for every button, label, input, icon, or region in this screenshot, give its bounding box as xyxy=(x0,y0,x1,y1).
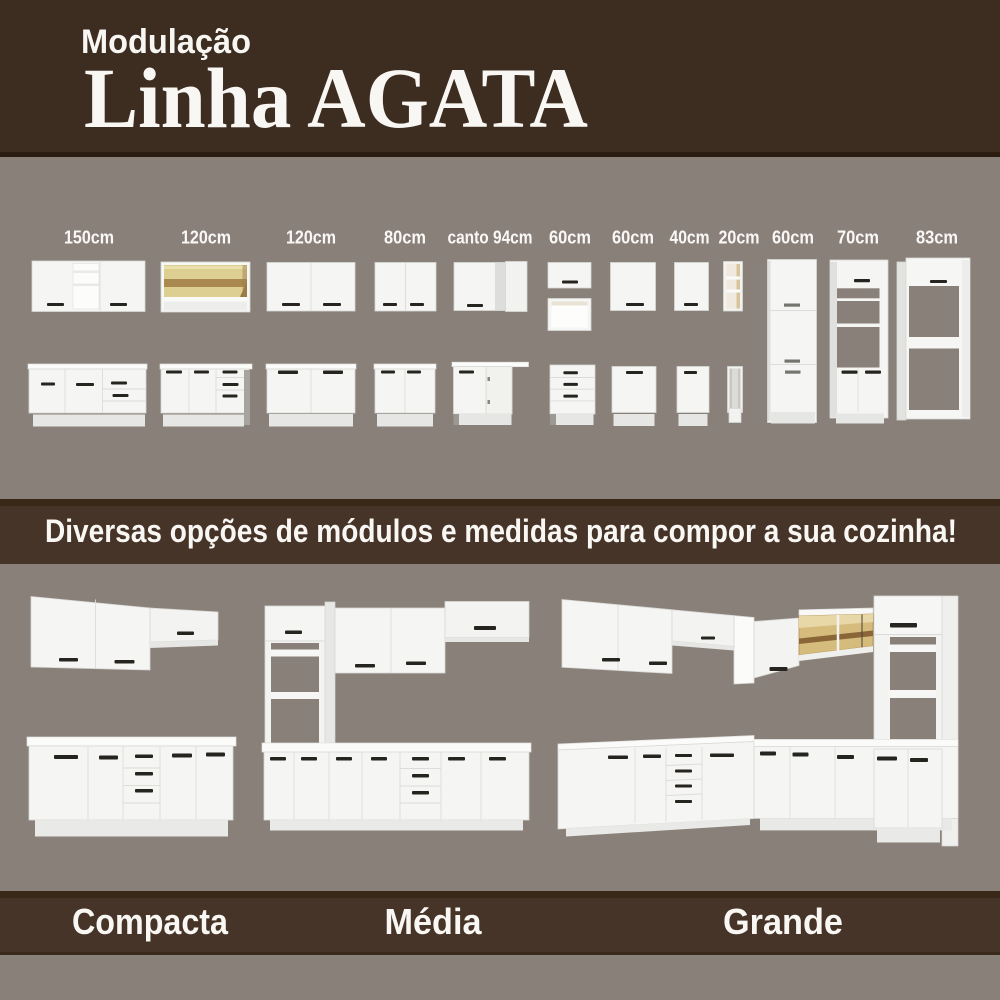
svg-text:80cm: 80cm xyxy=(384,228,426,248)
svg-text:120cm: 120cm xyxy=(181,228,231,248)
svg-text:70cm: 70cm xyxy=(837,228,879,248)
svg-text:60cm: 60cm xyxy=(549,228,591,248)
svg-text:20cm: 20cm xyxy=(719,228,760,248)
svg-text:120cm: 120cm xyxy=(286,228,336,248)
svg-text:Média: Média xyxy=(385,901,483,942)
svg-text:Linha AGATA: Linha AGATA xyxy=(84,50,588,146)
svg-text:150cm: 150cm xyxy=(64,228,114,248)
svg-text:Diversas opções de módulos e m: Diversas opções de módulos e medidas par… xyxy=(45,513,957,549)
svg-text:canto 94cm: canto 94cm xyxy=(448,228,533,248)
svg-text:Compacta: Compacta xyxy=(72,901,229,942)
svg-text:60cm: 60cm xyxy=(772,228,814,248)
svg-text:40cm: 40cm xyxy=(670,228,710,248)
svg-text:83cm: 83cm xyxy=(916,228,958,248)
svg-text:60cm: 60cm xyxy=(612,228,654,248)
svg-text:Grande: Grande xyxy=(723,901,843,942)
